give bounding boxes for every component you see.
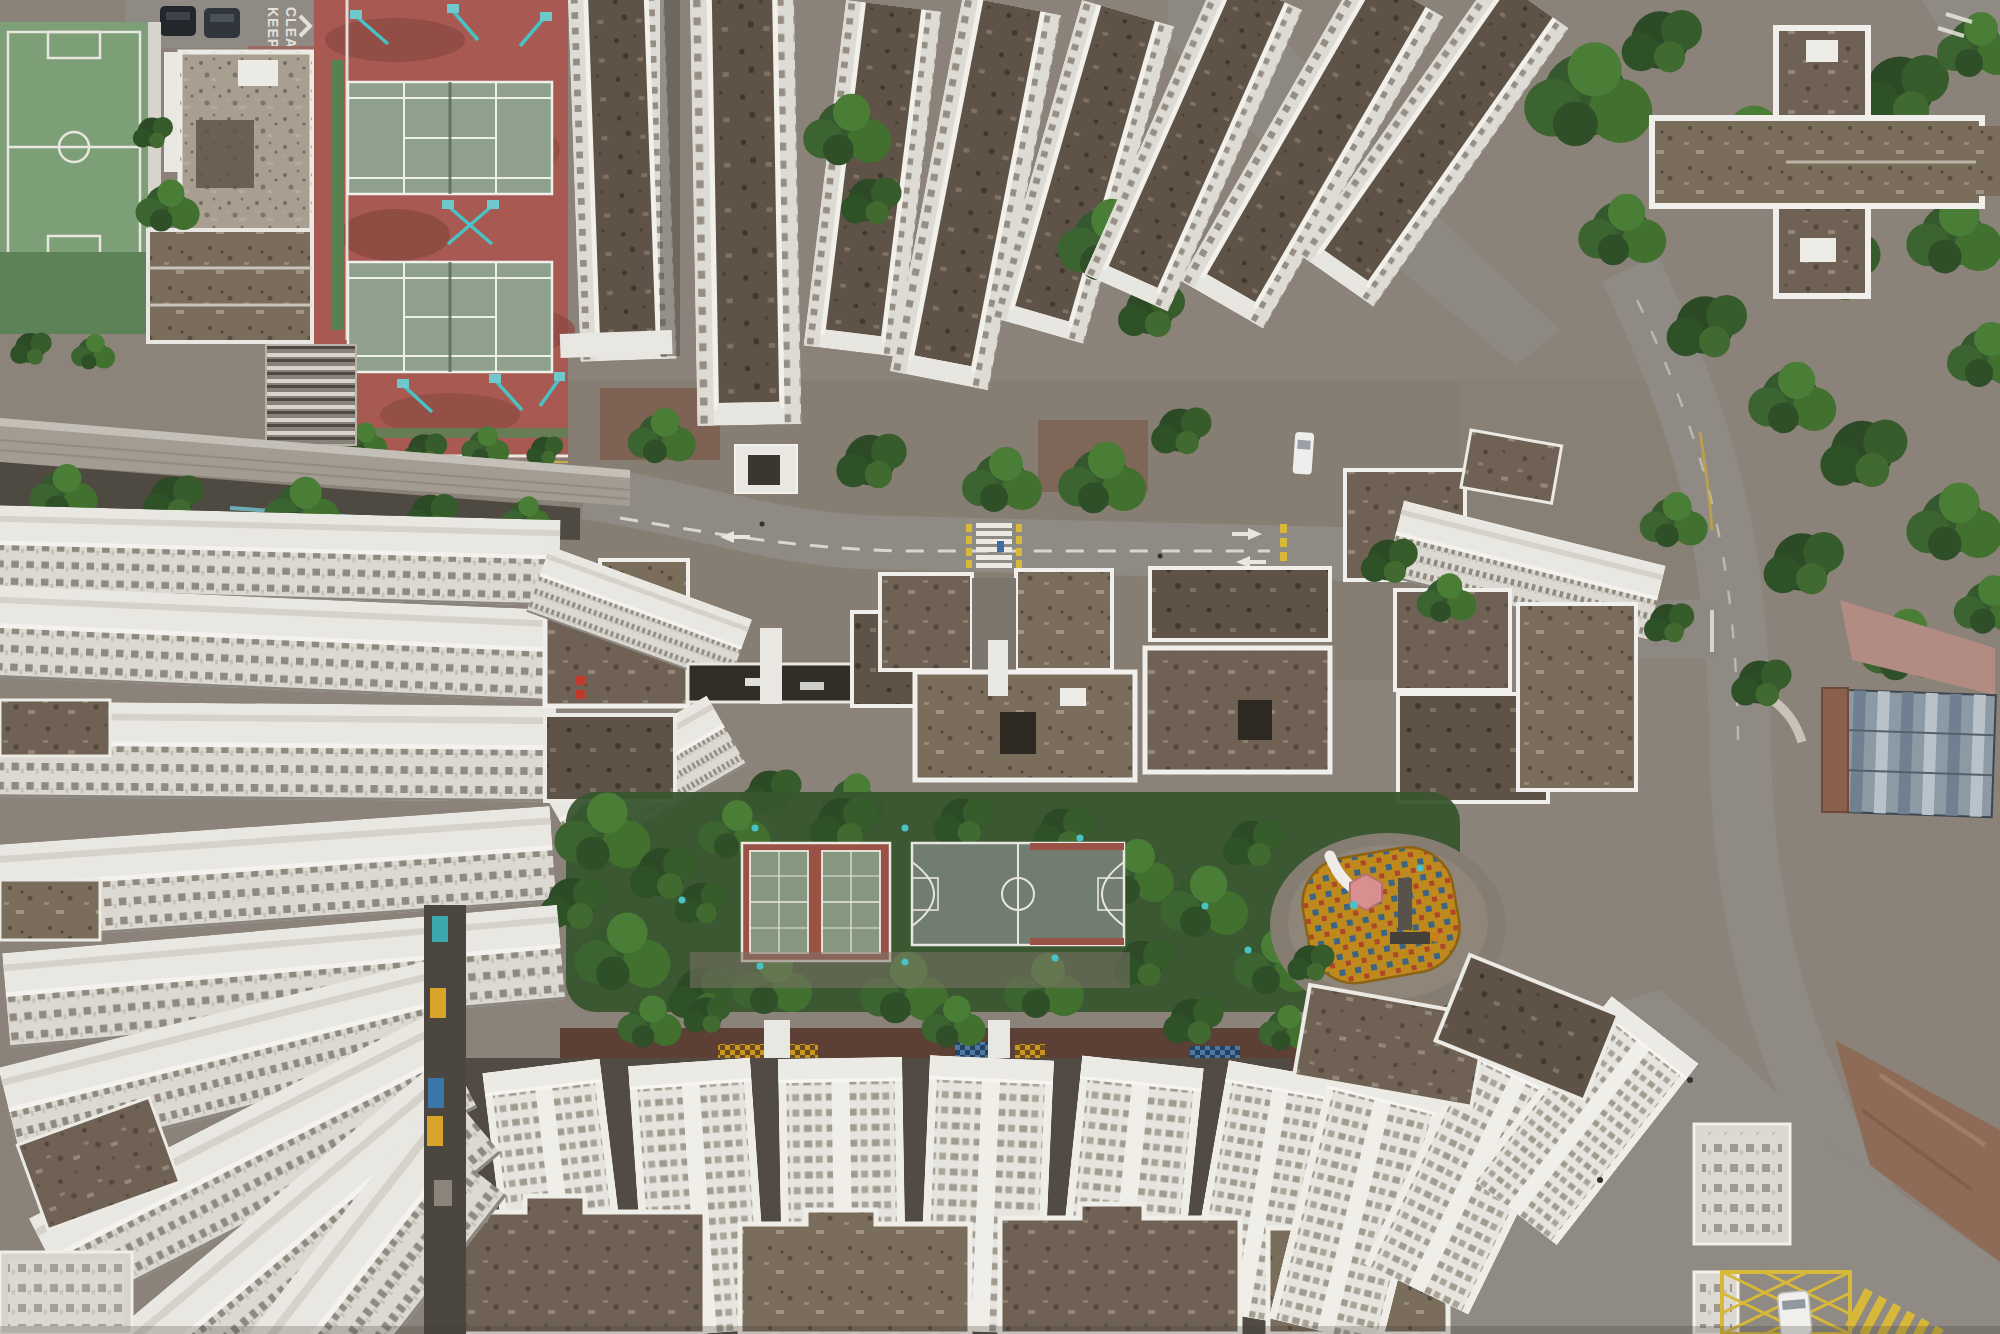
low-roof	[0, 880, 100, 940]
central-courtyard	[540, 792, 1506, 1023]
aerial-photo-canvas: KEEP CLEAR 保持 暢通	[0, 0, 2000, 1334]
basketball-court	[912, 843, 1124, 945]
white-car	[1292, 432, 1314, 475]
road-marking-keep: KEEP	[265, 7, 281, 49]
link-bridge2	[988, 640, 1008, 696]
tennis-court-1	[348, 82, 552, 194]
roof-plate	[880, 574, 972, 670]
roof-plate	[1150, 568, 1330, 640]
ball-court	[0, 22, 161, 334]
top-left-block: KEEP CLEAR 保持 暢通	[0, 6, 360, 370]
container-alley	[424, 905, 466, 1334]
top-left-podium	[148, 230, 312, 342]
courtyard-path	[690, 952, 1130, 988]
low-roof	[0, 700, 110, 756]
link-bridge	[760, 628, 782, 704]
roof-plate	[1145, 648, 1330, 772]
roof-plate	[1016, 570, 1112, 670]
brown-building	[1822, 688, 1848, 812]
roof-plate	[545, 715, 675, 801]
carpark-roof-vents	[266, 345, 356, 445]
pedestrian-dot2	[760, 522, 765, 527]
aerial-photo: KEEP CLEAR 保持 暢通	[0, 0, 2000, 1334]
parked-car-2	[204, 8, 240, 38]
recycling-bin	[997, 541, 1004, 552]
hedge-strip	[332, 60, 344, 330]
podium-roof	[1000, 1204, 1240, 1334]
small-court-building	[735, 445, 797, 493]
podium-roof	[455, 1196, 705, 1334]
roof-plate	[1518, 604, 1636, 790]
parked-car	[160, 6, 196, 36]
sky-walkway	[560, 330, 673, 358]
pedestrian-dot	[1158, 554, 1163, 559]
middle-left-slabs	[0, 505, 561, 940]
edge-vignette	[0, 1326, 2000, 1334]
glass-office-building	[1842, 690, 1996, 817]
play-frame	[1398, 878, 1412, 930]
podium-roof	[740, 1210, 970, 1334]
tower-block	[690, 0, 801, 426]
badminton-courts	[742, 843, 890, 961]
play-frame2	[1390, 932, 1430, 944]
tennis-court-2	[348, 262, 552, 372]
